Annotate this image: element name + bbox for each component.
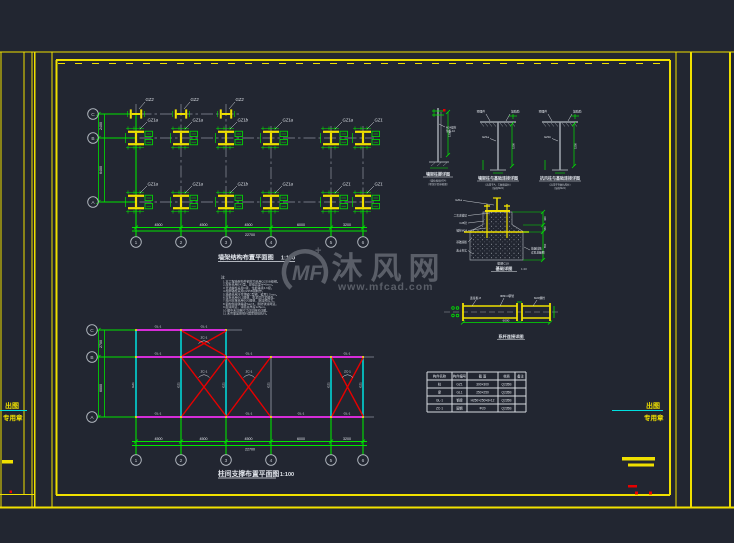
table-cell: 钢梁 [456,398,463,403]
table-cell: 柱 [438,382,442,387]
beam-label: GL-1 [246,352,253,356]
table-cell: 圆钢 [456,406,462,411]
detail-note: （锚栓规格M24） [428,179,448,183]
table-cell: H250×250×8×12 [471,399,495,403]
leader-label: Φ89×4钢管 [500,294,514,298]
leader-label: GZ1b [544,135,551,139]
column-label: GZ1 [327,382,331,388]
dim-text: 1500 [512,143,516,149]
axis-bubble-label: B [90,355,93,361]
detail-scale: 1:20 [521,267,527,271]
dim-text: 6000 [99,384,103,392]
detail-note: （适用于A、C轴墙架柱） [484,183,512,187]
dim-text: 22700 [245,448,255,452]
beam-label: GL-1 [155,412,162,416]
symbol-label: GZ2 [191,97,200,102]
brace-label: ZC-1 [201,336,208,340]
dim-text: 6000 [297,223,305,227]
leader-label: 预埋件 [539,110,548,114]
axis-bubble-label: 6 [362,458,365,464]
axis-bubble-label: 3 [225,458,228,464]
axis-bubble-label: A [91,200,95,206]
stamp-text: 出图 [646,401,660,410]
detail-column-base-2: 预埋件 加劲肋 1500 GZ1a 墙架柱与基础连接详图 （适用于A、C轴墙架柱… [477,110,520,191]
detail-title: 系杆连接详图 [498,333,523,340]
dim-text: 6000 [297,437,305,441]
beam-label: GL-1 [155,352,162,356]
right-sheet-stamp: 出图 专用章 [612,401,664,495]
dim-text: 4500 [200,437,208,441]
beam-label: GL-1 [201,325,208,329]
axis-bubble-label: 1 [135,240,138,246]
plan1-title: 墙架结构布置平面图 [218,254,274,262]
cad-sheet: 出图 专用章 出图 专用章 4500 4500 4500 6000 3200 2… [0,0,734,543]
leader-label: M20螺栓 [534,296,545,300]
axis-bubble-label: 2 [180,240,183,246]
left-sheet-stamp: 出图 专用章 [0,401,27,493]
dim-text: 550 [543,243,547,248]
axis-bubble-label: 3 [225,240,228,246]
dim-text: 6000 [503,319,510,323]
symbol-label: GZ1a [148,182,159,187]
red-mark [628,485,637,488]
symbol-label: GZ1a [283,182,294,187]
dim-text: 4500 [155,437,163,441]
leader-label: 基础插筋 [531,247,542,251]
leader-label: GZ1a [482,135,489,139]
red-mark [635,492,638,495]
table-cell: ZC-1 [436,407,443,411]
titleblock-bar [2,460,13,464]
titleblock-bar [628,464,654,467]
leader-label: 锚栓M24 [456,229,467,233]
table-cell: GZ1 [456,383,462,387]
dim-text: 4500 [245,223,253,227]
table-cell: 梁 [438,390,442,395]
dim-text: 3200 [343,437,351,441]
symbol-label: GZ1a [283,118,294,123]
watermark-logo: MF [292,262,323,285]
symbol-label: GZ2 [236,97,245,102]
axis-bubble-label: 5 [330,240,333,246]
watermark-sparkle: + [315,245,321,257]
dim-text: 2400 [99,122,103,130]
detail-title: 基础详图 [495,265,513,272]
leader-label: 连接板-8 [470,296,481,300]
column-label: GZ1 [177,382,181,388]
leader-label: 详见基础图 [531,251,545,255]
detail-column-base-1: 1200 M24锚栓 垫板-10 墙架柱脚详图 （锚栓规格M24） （埋深详见基… [423,108,457,186]
dim-text: 22700 [245,233,255,237]
stamp-text: 出图 [5,401,19,410]
brace-label: ZC-1 [246,370,253,374]
detail-note: （埋深详见基础图） [427,182,450,186]
dim-text: 4500 [155,223,163,227]
symbol-label: GZ1 [343,182,351,187]
table-cell: Q235B [502,399,512,403]
symbol-label: GZ1a [193,118,204,123]
detail-title: 墙架柱脚详图 [426,171,450,177]
dim-text: 6400 [99,166,103,174]
sheet-border [0,52,734,508]
table-cell: Q235B [502,383,512,387]
table-cell: Q235B [502,407,512,411]
watermark-url: www.mfcad.com [337,281,433,293]
cad-viewport: 出图 专用章 出图 专用章 4500 4500 4500 6000 3200 2… [0,0,734,543]
table-cell: GL-1 [436,399,443,403]
detail-note: （适用于B轴抗风柱） [548,183,572,187]
leader-label: 二次浇灌层 [454,214,468,218]
beam-label: GL-1 [298,412,305,416]
column-label: GZ1 [267,382,271,388]
symbol-label: GZ1a [343,118,354,123]
symbol-label: GZ1a [148,118,159,123]
concrete-pedestal [470,212,523,260]
table-header: 截 面 [479,374,487,379]
leader-label: 加劲肋 [573,110,582,114]
detail-note: （锚栓M24） [553,186,568,190]
detail-title: 抗风柱与基础连接详图 [540,175,580,181]
red-mark [10,491,13,494]
note-line: 11.未尽事宜按现行国家规范执行。 [223,311,269,316]
axis-bubble-label: 6 [362,240,365,246]
axis-bubble-label: C [91,112,95,118]
plan2-title: 柱间支撑布置平面图 [218,469,279,478]
leader-label: 预埋件 [477,110,486,114]
axis-bubble-label: B [91,136,94,142]
red-mark [649,492,652,495]
member-table: 构件名称 构件编号 截 面 材质 备注 柱 GZ1 300×300 Q235B … [427,372,526,412]
table-cell: Q235B [502,391,512,395]
axis-bubble-label: C [90,328,94,334]
dim-text: 3200 [343,223,351,227]
detail-note: （锚栓M24） [491,186,506,190]
leader-label: M24锚栓 [446,126,457,130]
leader-label: 加劲肋 [511,110,520,114]
symbol-label: GZ2 [146,97,155,102]
leader-label: 垫板-10 [446,129,455,133]
axis-bubble-label: 2 [180,458,183,464]
leader-label: GZ1a [455,198,462,202]
stamp-text: 专用章 [3,413,23,422]
symbol-label: GZ1 [375,118,383,123]
leader-label: 垫层C10 [497,261,509,266]
beam-label: GL-1 [155,325,162,329]
axis-bubble-label: 5 [330,458,333,464]
table-cell: GL1 [456,391,462,395]
detail-foundation: 300 150 550 GZ1a 二次浇灌层 C25砼 锚栓M24 基础底板 素… [454,198,547,272]
dim-text: 1500 [574,143,578,149]
stamp-text: 专用章 [644,413,664,422]
table-header: 构件名称 [433,374,447,379]
dim-text: 2700 [99,340,103,348]
dim-text: 300 [543,216,547,221]
axis-bubble-label: A [90,415,94,421]
brace-label: ZC-1 [201,370,208,374]
table-cell: Φ20 [479,407,485,411]
beam-label: GL-1 [344,352,351,356]
leader-label: 基础底板 [456,240,467,244]
dim-text: 4500 [245,437,253,441]
detail-title: 墙架柱与基础连接详图 [478,175,518,181]
plan2-scale: 1:100 [280,472,294,478]
beam-label: GL-1 [246,412,253,416]
symbol-label: GZ1b [238,182,249,187]
detail-column-base-3: 预埋件 加劲肋 1500 GZ1b 抗风柱与基础连接详图 （适用于B轴抗风柱） … [539,110,582,191]
dim-text: 4500 [200,223,208,227]
brace-label: ZC-1 [344,370,351,374]
symbol-label: GZ1 [375,182,383,187]
symbol-label: GZ1b [238,118,249,123]
beam-label: GL-1 [344,412,351,416]
column-label: GZ1 [359,382,363,388]
axis-bubble-label: 4 [270,240,273,246]
axis-bubble-label: 1 [135,458,138,464]
table-cell: 300×300 [476,383,489,387]
axis-bubble-label: 4 [270,458,273,464]
table-header: 材质 [503,374,510,379]
detail-tie-beam: 连接板-8 Φ89×4钢管 M20螺栓 6000 系杆连接详图 [444,294,560,340]
table-cell: 250×250 [476,391,489,395]
red-mark [443,109,446,112]
table-header: 备注 [517,374,524,379]
dim-text: 150 [543,226,547,231]
column-label: GZ1 [131,382,135,388]
table-header: 构件编号 [453,374,467,379]
symbol-label: GZ1a [193,182,204,187]
titleblock-bar [622,457,655,461]
leader-label: 素土夯实 [456,249,467,253]
leader-label: C25砼 [459,221,467,225]
watermark: MF + 沐 风 网 www.mfcad.com [284,245,440,293]
bracing-plan: ZC-1 ZC-1 ZC-1 ZC-1 GL-1 GL-1 GL-1 GL-1 … [87,325,374,479]
column-label: GZ1 [222,382,226,388]
